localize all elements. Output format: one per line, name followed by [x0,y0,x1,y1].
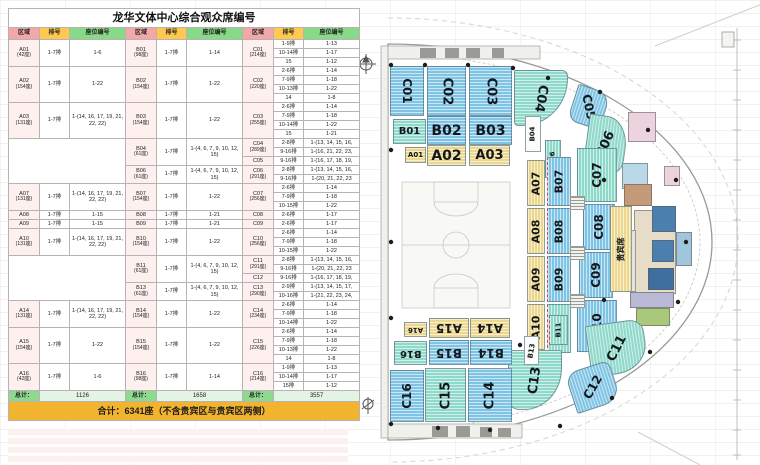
row-number-cell: 2-6排 [274,211,304,220]
back-of-house-room [652,240,674,262]
section-label: B02 [431,123,461,139]
grand-total: 合计：6341座（不含贵宾区与贵宾区两侧） [9,402,360,421]
row-number-cell: 7-9排 [274,310,304,319]
zone-cell: C08 [243,211,274,220]
column-header: 座位编号 [70,28,126,40]
row-number-cell: 10-15排 [274,202,304,211]
row-number-cell: 1-7排 [157,211,187,220]
map-section-c14: C14 [468,368,512,422]
table-row: B11(61座)1-7排1-(4, 6, 7, 9, 10, 12, 15)C1… [9,256,360,265]
section-label: A07 [530,171,543,195]
section-label: B04 [529,126,537,141]
table-row: A15(154座)1-7排1-22B15(154座)1-7排1-22C15(22… [9,328,360,337]
zone-cell: A08 [9,211,40,220]
table-row: A091-7排1-15B091-7排1-21C092-6排1-17 [9,220,360,229]
row-number-cell: 14 [274,94,304,103]
seat-number-cell: 1-14 [187,40,243,67]
section-label: B08 [553,219,566,243]
zone-cell: C12 [243,274,274,283]
back-of-house-room [648,268,674,290]
zone-cell: A10(131座) [9,229,40,256]
seat-number-cell: 1-22 [187,184,243,211]
row-number-cell: 10-14排 [274,49,304,58]
map-section-b01: B01 [393,119,426,144]
column-header: 排号 [40,28,70,40]
row-number-cell: 2-6排 [274,67,304,76]
row-number-cell: 2-8排 [274,139,304,148]
seat-number-cell: 1-21 [187,220,243,229]
map-section-a02: A02 [427,145,466,166]
stair-icon [570,294,585,308]
seat-number-cell: 1-(14, 16, 17, 19, 21, 22, 22) [70,184,126,211]
row-number-cell: 2-8排 [274,166,304,175]
seat-number-cell: 1-(13, 14, 15, 16, [304,139,360,148]
seat-number-cell: 1-12 [304,382,360,391]
row-number-cell: 1-7排 [40,67,70,103]
section-label: C11 [604,332,630,363]
seat-number-cell: 1-22 [304,121,360,130]
zone-cell: C16(214座) [243,364,274,391]
column-header: 区域 [126,28,157,40]
seat-number-cell: 1-6 [70,40,126,67]
row-number-cell: 9-16排 [274,148,304,157]
row-number-cell: 1-7排 [40,301,70,328]
row-number-cell: 2-6排 [274,328,304,337]
seat-number-cell: 1-18 [304,310,360,319]
seat-number-cell: 1-8 [304,94,360,103]
section-label: C01 [400,78,414,104]
total-value: 1126 [40,391,126,402]
seating-table-panel: 龙华文体中心综合观众席编号 区域排号座位编号区域排号座位编号区域排号座位编号 A… [8,8,360,421]
table-row: A01(42座)1-7排1-6B01(98座)1-7排1-14C01(214座)… [9,40,360,49]
row-number-cell: 2-6排 [274,229,304,238]
total-label: 总计： [126,391,157,402]
seat-number-cell: 1-(20, 21, 22, 23 [304,265,360,274]
zone-cell: C14(234座) [243,301,274,328]
seat-number-cell: 1-(14, 16, 17, 19, 21, 22, 22) [70,301,126,328]
seat-number-cell: 1-17 [304,211,360,220]
site-diagonal-line-top [655,4,760,46]
legend-box [722,32,734,47]
row-number-cell: 1-7排 [157,67,187,103]
zone-cell: C01(214座) [243,40,274,67]
zone-cell: C09 [243,220,274,229]
back-of-house-room [628,112,656,142]
section-label: 贵宾席 [616,237,627,261]
table-row: A14(131座)1-7排1-(14, 16, 17, 19, 21, 22, … [9,301,360,310]
seat-number-cell: 1-(4, 6, 7, 9, 10, 12, 15) [187,283,243,301]
seat-number-cell: 1-12 [304,58,360,67]
seat-number-cell: 1-18 [304,193,360,202]
row-number-cell: 9-16排 [274,274,304,283]
section-label: B01 [399,126,421,137]
row-number-cell: 7-9排 [274,193,304,202]
row-number-cell: 1-7排 [40,229,70,256]
map-section-c15: C15 [425,368,466,422]
back-of-house-room [676,232,692,266]
row-number-cell: 2-6排 [274,103,304,112]
zone-cell: B03(154座) [126,103,157,139]
table-row: A02(154座)1-7排1-22B02(154座)1-7排1-22C02(22… [9,67,360,76]
row-number-cell: 15排 [274,382,304,391]
section-label: B15 [436,346,462,360]
section-label: B03 [475,123,505,139]
zone-cell: C05 [243,157,274,166]
map-section-a14: A14 [470,318,510,338]
section-label: B14 [478,346,504,360]
section-label: B13 [526,342,536,358]
row-number-cell: 1-7排 [40,184,70,211]
row-number-cell: 10-14排 [274,373,304,382]
row-number-cell: 7-9排 [274,76,304,85]
zone-cell: B08 [126,211,157,220]
section-label: C15 [438,381,453,409]
map-section-b02: B02 [427,116,466,145]
seat-number-cell: 1-14 [304,67,360,76]
zone-cell: B04(61座) [126,139,157,166]
row-number-cell: 1-7排 [157,229,187,256]
seat-number-cell: 1-(20, 21, 22, 23 [304,175,360,184]
seat-number-cell: 1-18 [304,337,360,346]
seat-number-cell: 1-(16, 17, 18, 19, [304,274,360,283]
seat-number-cell: 1-22 [304,346,360,355]
seat-number-cell: 1-14 [304,103,360,112]
section-label: B07 [553,170,566,194]
zone-cell: C06(291座) [243,166,274,184]
seat-number-cell: 1-14 [304,328,360,337]
table-title: 龙华文体中心综合观众席编号 [9,9,360,28]
map-section-b16: B16 [394,341,427,365]
zone-cell: A02(154座) [9,67,40,103]
grand-total-row: 合计：6341座（不含贵宾区与贵宾区两侧） [9,402,360,421]
section-label: C13 [526,365,545,394]
seat-number-cell: 1-6 [70,364,126,391]
zone-cell: A07(131座) [9,184,40,211]
total-value: 1658 [157,391,243,402]
back-of-house-room [636,308,670,326]
seat-number-cell: 1-14 [187,364,243,391]
map-section-a01: A01 [405,147,426,163]
section-label: C04 [531,83,551,113]
section-label: C08 [592,214,606,240]
row-number-cell: 15 [274,58,304,67]
stair-icon [570,196,585,210]
zone-cell: A14(131座) [9,301,40,328]
map-section-c16: C16 [390,370,424,422]
seat-number-cell: 1-(13, 14, 15, 16, [304,166,360,175]
zone-cell: A16(42座) [9,364,40,391]
map-section-c01: C01 [390,66,424,116]
zone-cell: B10(154座) [126,229,157,256]
row-number-cell: 10-14排 [274,121,304,130]
row-number-cell: 15 [274,130,304,139]
seat-number-cell: 1-(4, 6, 7, 9, 10, 12, 15) [187,256,243,283]
back-of-house-room [630,292,674,308]
section-label: A08 [530,219,543,243]
map-section-b13: B13 [524,336,539,365]
section-label: A02 [431,148,461,164]
seat-number-cell: 1-(21, 22, 23, 24, [304,292,360,301]
seat-number-cell: 1-22 [70,67,126,103]
section-label: C03 [483,77,498,105]
seat-number-cell: 1-17 [304,49,360,58]
seat-number-cell: 1-22 [187,67,243,103]
seat-number-cell: 1-8 [304,355,360,364]
map-section-b15: B15 [429,340,469,365]
zone-cell: B07(154座) [126,184,157,211]
seat-number-cell: 1-22 [304,202,360,211]
map-section-b14: B14 [470,340,512,365]
zone-cell: B15(154座) [126,328,157,364]
zone-cell: C11(291座) [243,256,274,274]
table-row: B04(61座)1-7排1-(4, 6, 7, 9, 10, 12, 15)C0… [9,139,360,148]
column-header: 排号 [157,28,187,40]
seat-number-cell: 1-14 [304,301,360,310]
left-corridor [381,46,388,438]
seat-number-cell: 1-14 [304,229,360,238]
seat-number-cell: 1-13 [304,364,360,373]
column-header: 座位编号 [304,28,360,40]
row-number-cell: 7-9排 [274,112,304,121]
table-row: A16(42座)1-7排1-6B16(98座)1-7排1-14C16(214座)… [9,364,360,373]
row-number-cell: 2-6排 [274,301,304,310]
map-section-vip: 贵宾席 [610,206,632,292]
table-header-row: 区域排号座位编号区域排号座位编号区域排号座位编号 [9,28,360,40]
section-label: B16 [400,348,422,359]
table-row: A07(131座)1-7排1-(14, 16, 17, 19, 21, 22, … [9,184,360,193]
zone-cell: C07(256座) [243,184,274,211]
seat-number-cell: 1-(13, 14, 15, 17, [304,283,360,292]
seat-number-cell: 1-18 [304,112,360,121]
section-label: B11 [554,322,562,337]
seat-number-cell: 1-14 [304,184,360,193]
row-number-cell: 10-13排 [274,346,304,355]
back-of-house-room [652,206,676,232]
row-number-cell: 1-7排 [40,364,70,391]
row-number-cell: 1-7排 [157,40,187,67]
seat-number-cell: 1-22 [187,328,243,364]
empty-cell [9,139,126,184]
survey-marker-icon [362,397,374,414]
row-number-cell: 14 [274,355,304,364]
row-number-cell: 2-6排 [274,220,304,229]
seating-table: 龙华文体中心综合观众席编号 区域排号座位编号区域排号座位编号区域排号座位编号 A… [8,8,360,421]
section-label: C09 [589,262,603,288]
seat-number-cell: 1-22 [304,247,360,256]
zone-cell: B11(61座) [126,256,157,283]
seat-number-cell: 1-17 [304,373,360,382]
row-number-cell: 9-16排 [274,175,304,184]
seat-number-cell: 1-(4, 6, 7, 9, 10, 12, 15) [187,166,243,184]
zone-cell: B01(98座) [126,40,157,67]
map-section-c07: C07 [577,148,617,202]
map-section-b11: B11 [549,315,568,345]
row-number-cell: 1-7排 [157,103,187,139]
zone-cell: B06(61座) [126,166,157,184]
map-section-a16: A16 [404,322,427,337]
map-section-c03: C03 [469,66,512,116]
row-number-cell: 1-7排 [157,166,187,184]
seat-number-cell: 1-(16, 21, 22, 23, [304,148,360,157]
stair-icon [570,246,585,260]
seat-number-cell: 1-18 [304,76,360,85]
section-label: A14 [477,321,503,335]
total-label: 总计： [243,391,274,402]
row-number-cell: 1-7排 [40,103,70,139]
row-number-cell: 1-9排 [274,364,304,373]
map-section-a09: A09 [527,256,545,302]
map-section-b08: B08 [547,208,571,254]
seat-number-cell: 1-(14, 16, 17, 19, 21, 22, 22) [70,229,126,256]
zone-cell: C10(256座) [243,229,274,256]
row-number-cell: 7-9排 [274,337,304,346]
total-label: 总计： [9,391,40,402]
seat-number-cell: 1-(16, 17, 18, 19, [304,157,360,166]
row-number-cell: 10-15排 [274,247,304,256]
section-label: C02 [439,77,454,105]
column-header: 区域 [9,28,40,40]
row-number-cell: 1-7排 [40,220,70,229]
zone-cell: B16(98座) [126,364,157,391]
zone-cell: A09 [9,220,40,229]
row-number-cell: 1-7排 [40,40,70,67]
seat-number-cell: 1-21 [187,211,243,220]
seat-number-cell: 1-22 [187,229,243,256]
row-number-cell: 1-7排 [157,256,187,283]
total-value: 3557 [274,391,360,402]
section-label: C07 [590,162,604,188]
map-section-c02: C02 [427,66,466,116]
back-of-house-room [664,166,680,186]
section-label: A15 [436,321,462,335]
map-section-a03: A03 [469,145,510,166]
site-diagonal-line-bottom [638,432,700,465]
row-number-cell: 10-14排 [274,319,304,328]
row-number-cell: 1-7排 [40,211,70,220]
seat-number-cell: 1-21 [304,130,360,139]
seat-number-cell: 1-22 [187,103,243,139]
map-section-b07: B07 [547,157,571,206]
seat-number-cell: 1-22 [187,301,243,328]
row-number-cell: 1-7排 [157,139,187,166]
zone-cell: B13(61座) [126,283,157,301]
empty-cell [9,256,126,301]
section-label: C14 [482,381,497,409]
seat-number-cell: 1-(4, 6, 7, 9, 10, 12, 15) [187,139,243,166]
seat-number-cell: 1-22 [70,328,126,364]
row-number-cell: 9-16排 [274,265,304,274]
totals-row: 总计：1126总计：1658总计：3557 [9,391,360,402]
map-section-b03: B03 [469,116,512,145]
seat-number-cell: 1-22 [304,319,360,328]
row-number-cell: 1-7排 [157,283,187,301]
zone-cell: A15(154座) [9,328,40,364]
zone-cell: B14(154座) [126,301,157,328]
back-of-house-room [624,184,652,206]
row-number-cell: 1-7排 [40,328,70,364]
section-label: B09 [553,267,566,291]
map-section-b09: B09 [547,256,571,302]
map-section-a07: A07 [527,160,545,206]
table-row: A03(131座)1-7排1-(14, 16, 17, 19, 21, 22, … [9,103,360,112]
table-row: A081-7排1-15B081-7排1-21C082-6排1-17 [9,211,360,220]
map-section-a15: A15 [429,318,469,338]
section-label: C12 [581,372,606,401]
section-label: A01 [408,151,423,159]
zone-cell: C15(226座) [243,328,274,364]
row-number-cell: 2-6排 [274,184,304,193]
section-label: C16 [400,383,414,409]
table-row: A10(131座)1-7排1-(14, 16, 17, 19, 21, 22, … [9,229,360,238]
row-number-cell: 2-8排 [274,256,304,265]
seat-number-cell: 1-18 [304,238,360,247]
section-label: A16 [408,326,423,334]
row-number-cell: 1-7排 [157,364,187,391]
basketball-court [402,182,510,308]
section-label: A03 [475,148,503,163]
section-label: A09 [530,267,543,291]
zone-cell: C03(255座) [243,103,274,139]
row-number-cell: 1-9排 [274,40,304,49]
zone-cell: A03(131座) [9,103,40,139]
row-number-cell: 7-9排 [274,238,304,247]
seat-number-cell: 1-15 [70,220,126,229]
map-section-a08: A08 [527,208,545,254]
seat-number-cell: 1-17 [304,220,360,229]
row-number-cell: 9-16排 [274,157,304,166]
row-number-cell: 2-9排 [274,283,304,292]
row-number-cell: 1-7排 [157,220,187,229]
seat-number-cell: 1-(13, 14, 15, 16, [304,256,360,265]
row-number-cell: 1-7排 [157,328,187,364]
top-corridor [388,46,540,59]
seat-number-cell: 1-13 [304,40,360,49]
row-number-cell: 10-16排 [274,292,304,301]
column-header: 区域 [243,28,274,40]
row-number-cell: 1-7排 [157,301,187,328]
zone-cell: C04(289座) [243,139,274,157]
zone-cell: B02(154座) [126,67,157,103]
map-section-b04: B04 [525,116,541,152]
zone-cell: B09 [126,220,157,229]
row-number-cell: 1-7排 [157,184,187,211]
row-number-cell: 10-13排 [274,85,304,94]
zone-cell: C13(290座) [243,283,274,301]
zone-cell: C02(220座) [243,67,274,103]
seat-number-cell: 1-(14, 16, 17, 19, 21, 22, 22) [70,103,126,139]
zone-cell: A01(42座) [9,40,40,67]
seat-number-cell: 1-22 [304,85,360,94]
column-header: 座位编号 [187,28,243,40]
seat-number-cell: 1-15 [70,211,126,220]
column-header: 排号 [274,28,304,40]
